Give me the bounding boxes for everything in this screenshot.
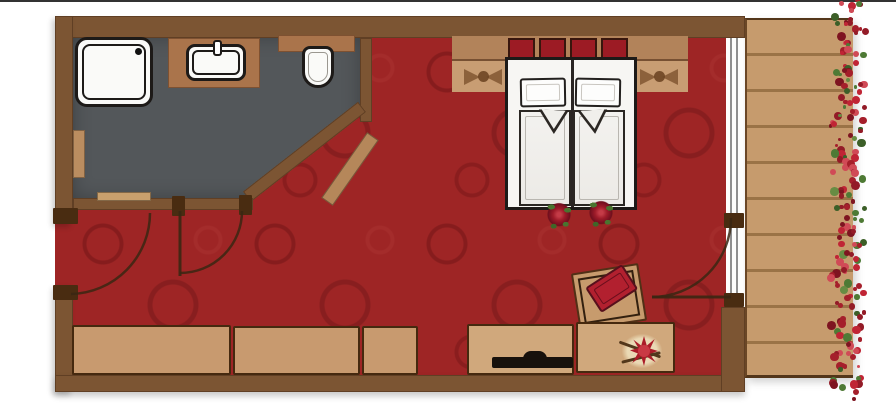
- bouquet-flower-center: [638, 345, 650, 357]
- flower-blossom: [853, 287, 857, 291]
- flower-blossom: [857, 139, 866, 148]
- wall-east-lower: [721, 307, 745, 392]
- headboard-red-cushion: [570, 38, 597, 59]
- armchair: [571, 263, 647, 331]
- flower-blossom: [852, 242, 857, 247]
- duvet-fold: [577, 109, 608, 135]
- flower-blossom: [839, 384, 847, 392]
- pillow: [575, 78, 621, 108]
- wall-north: [55, 16, 745, 38]
- flower-blossom: [859, 218, 864, 223]
- flower-blossom: [852, 326, 860, 334]
- double-bed: [505, 57, 637, 210]
- flower-blossom: [841, 267, 847, 273]
- flower-blossom: [858, 129, 863, 134]
- flower-blossom: [843, 364, 848, 369]
- flower-blossom: [840, 51, 844, 55]
- flower-blossom: [849, 8, 855, 14]
- flower-blossom: [856, 283, 862, 289]
- flower-blossom: [830, 353, 838, 361]
- flower-blossom: [853, 389, 859, 395]
- flower-blossom: [838, 227, 845, 234]
- flower-blossom: [857, 314, 863, 320]
- flower-blossom: [842, 68, 847, 73]
- flower-blossom: [859, 117, 867, 125]
- flower-blossom: [844, 295, 851, 302]
- flower-blossom: [852, 397, 857, 402]
- flower-blossom: [859, 175, 866, 182]
- flower-blossom: [862, 105, 867, 110]
- faucet-icon: [213, 40, 222, 56]
- flower-blossom: [854, 31, 858, 35]
- flower-blossom: [838, 114, 842, 118]
- rose-shadow-center: [654, 71, 665, 82]
- duvet: [519, 110, 571, 206]
- wardrobe-section: [233, 326, 360, 375]
- flower-blossom: [860, 52, 867, 59]
- duvet-rose-print: [589, 196, 613, 228]
- flower-blossom: [831, 121, 837, 127]
- wall-west-upper: [55, 16, 73, 224]
- flower-blossom: [846, 342, 851, 347]
- flower-blossom: [850, 354, 856, 360]
- bathroom-door-post: [239, 195, 252, 215]
- flower-blossom: [847, 100, 853, 106]
- duvet-rose-print: [547, 198, 571, 230]
- entrance-door-post: [53, 285, 78, 300]
- flower-blossom: [853, 60, 859, 66]
- pillow-inner-line: [526, 84, 560, 102]
- flower-blossom: [850, 109, 855, 114]
- pillow-inner-line: [581, 84, 615, 102]
- flower-blossom: [852, 210, 858, 216]
- nightstand-rose-shadow: [638, 66, 680, 88]
- washbasin: [186, 44, 246, 81]
- flower-blossom: [851, 229, 857, 235]
- flower-blossom: [853, 264, 860, 271]
- bathroom-door-post: [172, 196, 185, 216]
- toilet-inner-line: [308, 52, 328, 82]
- balcony-door-post: [724, 213, 744, 228]
- flower-blossom: [850, 380, 859, 389]
- flower-blossom: [852, 96, 860, 104]
- duvet-fold: [537, 109, 568, 135]
- wall-south: [55, 375, 745, 392]
- flower-blossom: [851, 181, 860, 190]
- rose-shadow-center: [478, 71, 489, 82]
- flower-blossom: [838, 367, 843, 372]
- nightstand-rose-shadow: [462, 66, 504, 88]
- flower-blossom: [862, 206, 868, 212]
- flower-blossom: [839, 205, 844, 210]
- flower-blossom: [853, 256, 859, 262]
- flower-blossom: [857, 243, 862, 248]
- flower-blossom: [839, 193, 844, 198]
- toilet: [302, 46, 334, 88]
- flower-blossom: [857, 365, 861, 369]
- entrance-doorway-floor: [55, 224, 73, 285]
- wardrobe-section: [72, 325, 231, 375]
- flower-blossom: [858, 337, 862, 341]
- flower-blossom: [851, 169, 859, 177]
- flower-blossom: [860, 290, 867, 297]
- flower-blossom: [844, 88, 850, 94]
- flower-blossom: [851, 199, 856, 204]
- flower-blossom: [849, 303, 856, 310]
- duvet: [573, 110, 625, 206]
- flower-blossom: [847, 114, 854, 121]
- flower-blossom: [836, 258, 844, 266]
- flower-blossom: [844, 46, 851, 53]
- flower-blossom: [854, 294, 859, 299]
- headboard-red-cushion: [539, 38, 566, 59]
- tv-flatscreen: [492, 357, 573, 368]
- entrance-door-post: [53, 208, 78, 224]
- shower-drain-icon: [135, 48, 142, 55]
- headboard-red-cushion: [601, 38, 628, 59]
- flower-blossom: [839, 1, 844, 6]
- towel-rail: [73, 130, 85, 178]
- flower-blossom: [862, 28, 869, 35]
- flower-blossom: [840, 316, 845, 321]
- flower-blossom: [834, 205, 840, 211]
- wardrobe-section: [362, 326, 418, 375]
- top-border-line: [0, 0, 896, 2]
- flower-blossom: [854, 85, 858, 89]
- headboard-red-cushion: [508, 38, 535, 59]
- balcony-door-post: [724, 293, 744, 307]
- shower-tray: [75, 37, 153, 107]
- floor-plan: [0, 0, 896, 420]
- flower-blossom: [837, 235, 842, 240]
- flower-blossom: [862, 310, 866, 314]
- bathroom-shelf: [97, 192, 151, 201]
- pillow: [520, 78, 566, 108]
- flower-blossom: [853, 217, 857, 221]
- flower-blossom: [853, 51, 859, 57]
- flower-blossom: [827, 321, 836, 330]
- flower-blossom: [830, 381, 838, 389]
- flower-blossom: [857, 89, 862, 94]
- flower-blossom: [835, 21, 840, 26]
